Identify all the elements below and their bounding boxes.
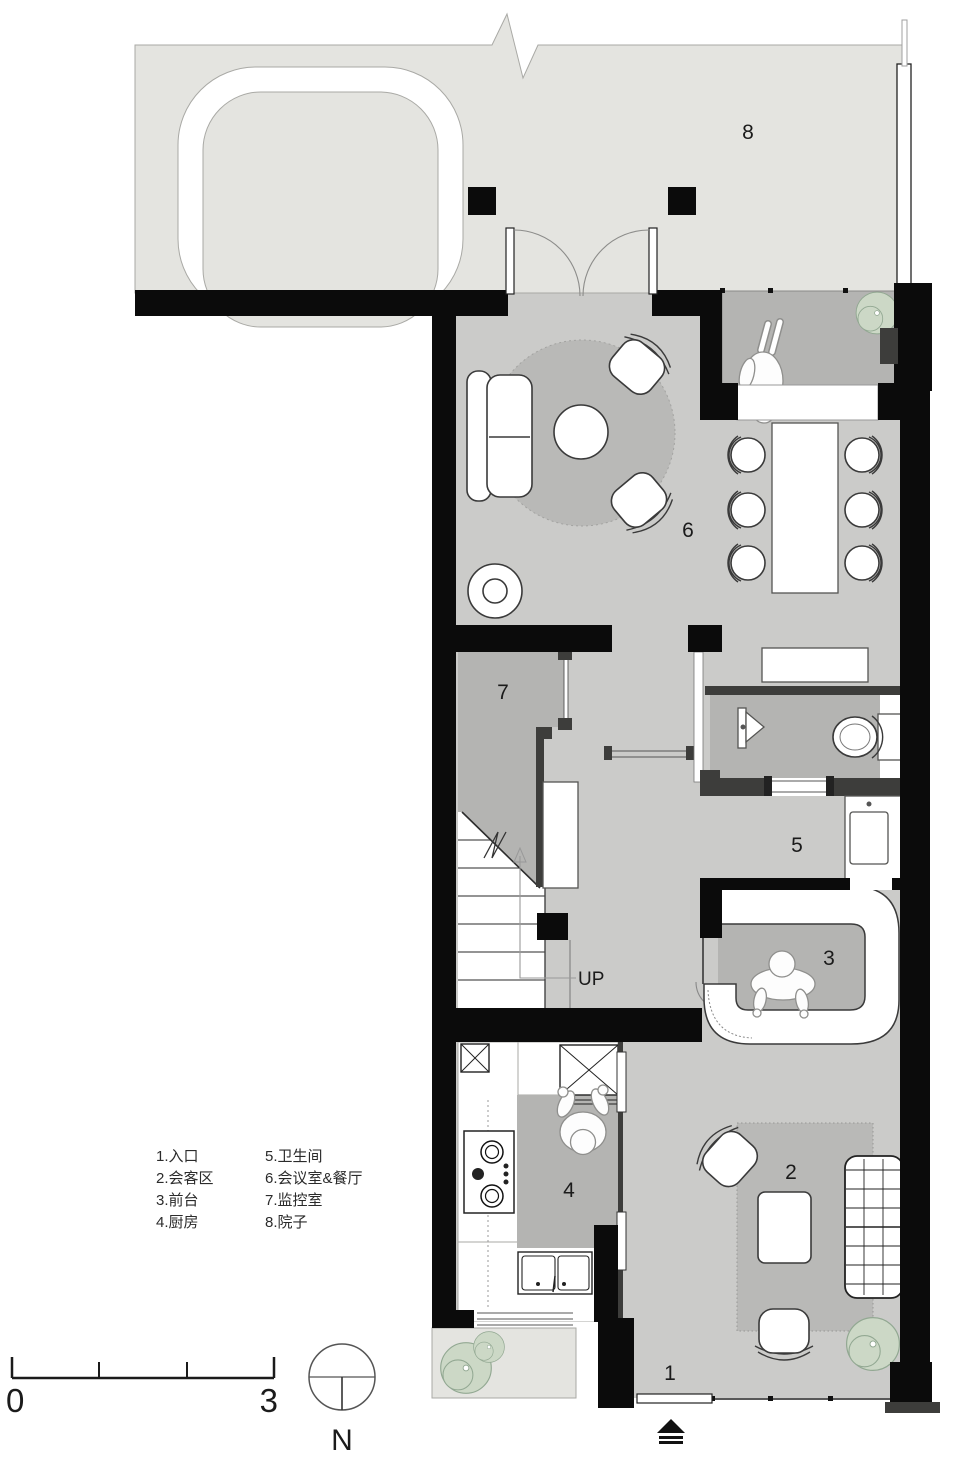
toilet [833,714,903,760]
room-number-6: 6 [682,519,694,542]
legend-column-1: 1.入口 2.会客区 3.前台 4.厨房 [156,1146,214,1234]
room-number-5: 5 [791,834,803,857]
tufted-sofa [845,1156,903,1298]
scale-start: 0 [6,1382,24,1419]
dining-chair [728,491,765,529]
porch [720,288,902,423]
plant [474,1332,505,1363]
room-number-1: 1 [664,1362,676,1385]
up-label: UP [578,969,604,990]
courtyard [135,14,911,327]
kitchen [458,1042,626,1322]
sofa [467,371,532,501]
dining-chair [845,436,882,474]
dining-area [728,423,882,593]
cabinet [543,782,578,888]
room-number-2: 2 [785,1161,797,1184]
sink-counter [845,796,905,880]
fence [897,64,911,284]
column [668,187,696,215]
stove [464,1131,514,1213]
dining-chair [728,436,765,474]
legend-item: 3.前台 [156,1190,214,1212]
entry-marker [657,1419,685,1444]
dining-chair [845,491,882,529]
door-strip [694,652,703,782]
floor-plan-page: 8 6 7 5 3 4 2 1 UP 0 3 N 1.入口 2.会客区 3.前台… [0,0,960,1463]
dining-table [772,423,838,593]
floor-plan-svg: 8 6 7 5 3 4 2 1 UP 0 3 N [0,0,960,1463]
glass-partition [564,655,568,725]
dining-chair [845,544,882,582]
cabinet-x [461,1044,489,1072]
room-number-4: 4 [563,1179,575,1202]
side-stool [468,564,522,618]
kitchen-sink [518,1252,592,1294]
coffee-table [554,405,608,459]
legend-item: 2.会客区 [156,1168,214,1190]
room-number-8: 8 [742,121,754,144]
plant [856,292,898,334]
cabinet [762,648,868,682]
legend-item: 8.院子 [265,1212,363,1234]
north-label: N [331,1424,353,1457]
legend-item: 4.厨房 [156,1212,214,1234]
legend-item: 6.会议室&餐厅 [265,1168,363,1190]
legend-column-2: 5.卫生间 6.会议室&餐厅 7.监控室 8.院子 [265,1146,363,1234]
bench [737,385,878,420]
dining-chair [728,544,765,582]
column [468,187,496,215]
legend-item: 7.监控室 [265,1190,363,1212]
entrance [637,1394,890,1444]
scale-bar: 0 3 [6,1357,278,1419]
sliding-door [637,1394,712,1403]
legend-item: 5.卫生间 [265,1146,363,1168]
reception [704,886,899,1044]
room-number-7: 7 [497,681,509,704]
room-number-3: 3 [823,947,835,970]
north-arrow: N [309,1344,375,1457]
scale-end: 3 [260,1382,278,1419]
coffee-table [758,1192,811,1263]
legend-item: 1.入口 [156,1146,214,1168]
